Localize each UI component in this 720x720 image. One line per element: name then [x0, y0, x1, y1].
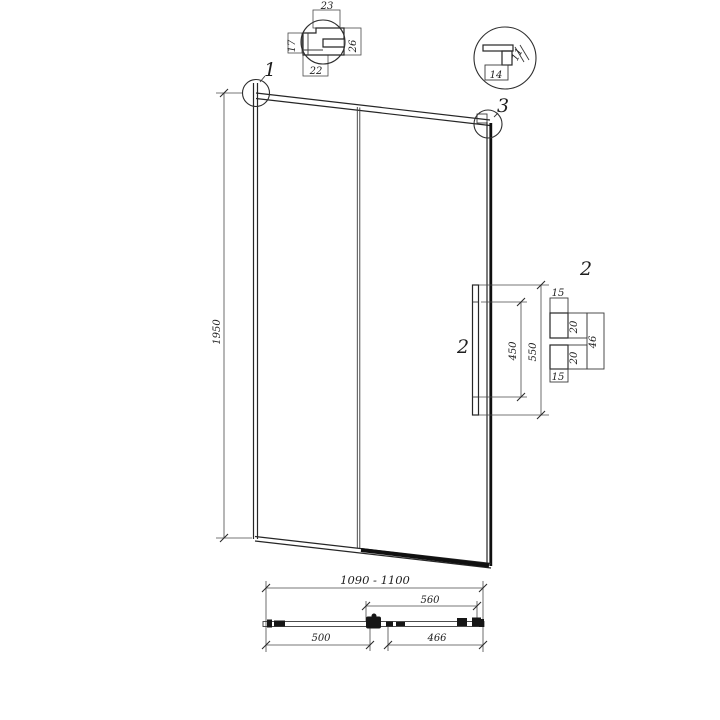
front-view: 1950 1 3 2	[212, 59, 509, 568]
plan-dim-466: 466	[426, 633, 447, 644]
technical-drawing-page: 23 22 26 17 14 11 1950	[0, 0, 720, 720]
profile-dim-23: 23	[320, 1, 334, 12]
handle-dim-20-upper: 20	[569, 320, 580, 334]
plan-right-end-fitting	[479, 619, 484, 627]
handle-bar	[473, 285, 479, 415]
handle-dim-15-bottom: 15	[552, 372, 565, 383]
plan-view: 1090 - 1100 560 500 466	[262, 573, 487, 652]
plan-dim-560: 560	[420, 595, 440, 606]
plan-left-bracket	[274, 621, 285, 627]
drawing-canvas: 23 22 26 17 14 11 1950	[0, 0, 720, 720]
handle-dim-15-top: 15	[552, 288, 565, 299]
handle-dim-450: 450	[508, 341, 519, 362]
callout-2-detail-label: 2	[579, 258, 592, 280]
plan-dim-500: 500	[311, 633, 331, 644]
plan-right-roller	[457, 618, 467, 626]
profile-dim-26: 26	[348, 39, 359, 53]
detail-handle-section: 2 15 20 20 15 46	[550, 258, 604, 383]
handle-boss-upper	[550, 313, 568, 338]
handle-dim-46: 46	[588, 335, 599, 349]
plan-guide-block-1	[386, 622, 393, 627]
dim-box-23	[313, 10, 340, 28]
handle-dim-550: 550	[528, 342, 539, 362]
corner-balloon-1	[243, 80, 270, 107]
profile-dim-17: 17	[287, 39, 298, 52]
sliding-panel-bottom-profile	[361, 550, 489, 566]
detail-profile-section: 23 22 26 17	[287, 1, 361, 77]
plan-roller-carriage	[366, 617, 381, 629]
callout-1-label: 1	[264, 59, 276, 81]
bottom-rail-lower	[255, 541, 491, 568]
top-rail-upper	[256, 93, 490, 120]
bracket-dim-14: 14	[490, 70, 503, 81]
handle-box-15-top	[550, 298, 568, 313]
profile-dim-22: 22	[309, 66, 323, 77]
callout-3-label: 3	[497, 95, 509, 117]
wall-profile-outline	[303, 28, 344, 55]
plan-guide-block-2	[396, 622, 405, 626]
bracket-top-bar	[483, 45, 513, 51]
handle-boss-lower	[550, 345, 568, 369]
door-height-label: 1950	[212, 319, 223, 345]
top-rail-lower	[256, 99, 490, 126]
door-width-label: 1090 - 1100	[340, 573, 410, 587]
detail-bracket-section: 14 11	[474, 27, 536, 89]
handle-dim-20-lower: 20	[569, 351, 580, 365]
plan-left-end-fitting	[267, 620, 272, 628]
callout-2-handle-label: 2	[456, 336, 469, 358]
